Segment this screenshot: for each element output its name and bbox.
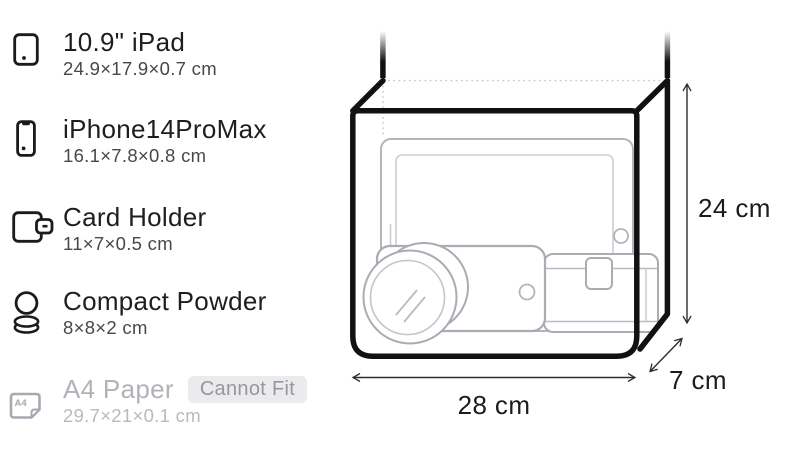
- bag-capacity-infographic: 10.9" iPad 24.9×17.9×0.7 cm iPhone14ProM…: [0, 0, 800, 455]
- top-right-edge: [637, 81, 668, 111]
- card-holder-drawing: [544, 254, 658, 332]
- top-left-edge: [353, 81, 383, 111]
- bag-depth-label: 7 cm: [669, 365, 727, 395]
- bag-width-label: 28 cm: [448, 390, 540, 420]
- bag-height-label: 24 cm: [698, 193, 771, 223]
